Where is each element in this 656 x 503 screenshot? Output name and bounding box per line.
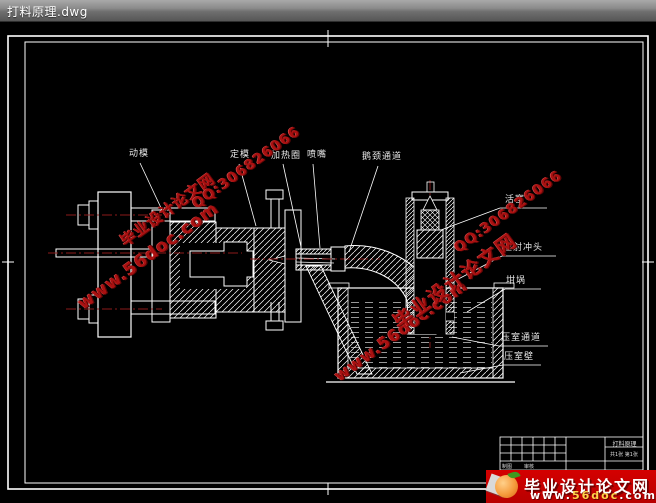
label-chamber-wall: 压室壁 xyxy=(504,352,534,362)
banner-url-domain: 56doc xyxy=(572,489,619,502)
label-chamber-channel: 压室通道 xyxy=(501,333,541,343)
label-crucible: 坩埚 xyxy=(506,276,526,286)
furnace-assembly xyxy=(306,182,515,382)
window-title: 打料原理.dwg xyxy=(7,3,88,20)
titleblock-cell-1: 审核 xyxy=(524,463,534,470)
label-gooseneck: 鹅颈通道 xyxy=(362,152,402,162)
site-banner-link[interactable]: 毕业设计论文网 www.56doc.com xyxy=(486,470,656,503)
site-logo xyxy=(488,472,522,501)
banner-url-www: www. xyxy=(530,489,572,502)
banner-url-com: .com xyxy=(619,489,656,502)
peach-icon xyxy=(495,475,518,498)
banner-url: www.56doc.com xyxy=(530,489,656,502)
titleblock-cell-0: 制图 xyxy=(502,463,512,470)
label-moving-die: 动模 xyxy=(129,149,149,159)
titleblock-drawing-name: 打料原理 xyxy=(606,439,643,448)
label-nozzle: 喷嘴 xyxy=(307,150,327,160)
dwg-viewer-window: 打料原理.dwg xyxy=(0,0,656,503)
cad-canvas[interactable]: 动模 定模 加热圈 喷嘴 鹅颈通道 活塞 压射冲头 坩埚 压室通道 压室壁 打料… xyxy=(0,22,656,503)
titleblock-sheet-info: 共1张 第1张 xyxy=(604,451,644,458)
cad-drawing xyxy=(0,22,656,503)
window-titlebar[interactable]: 打料原理.dwg xyxy=(0,0,656,22)
